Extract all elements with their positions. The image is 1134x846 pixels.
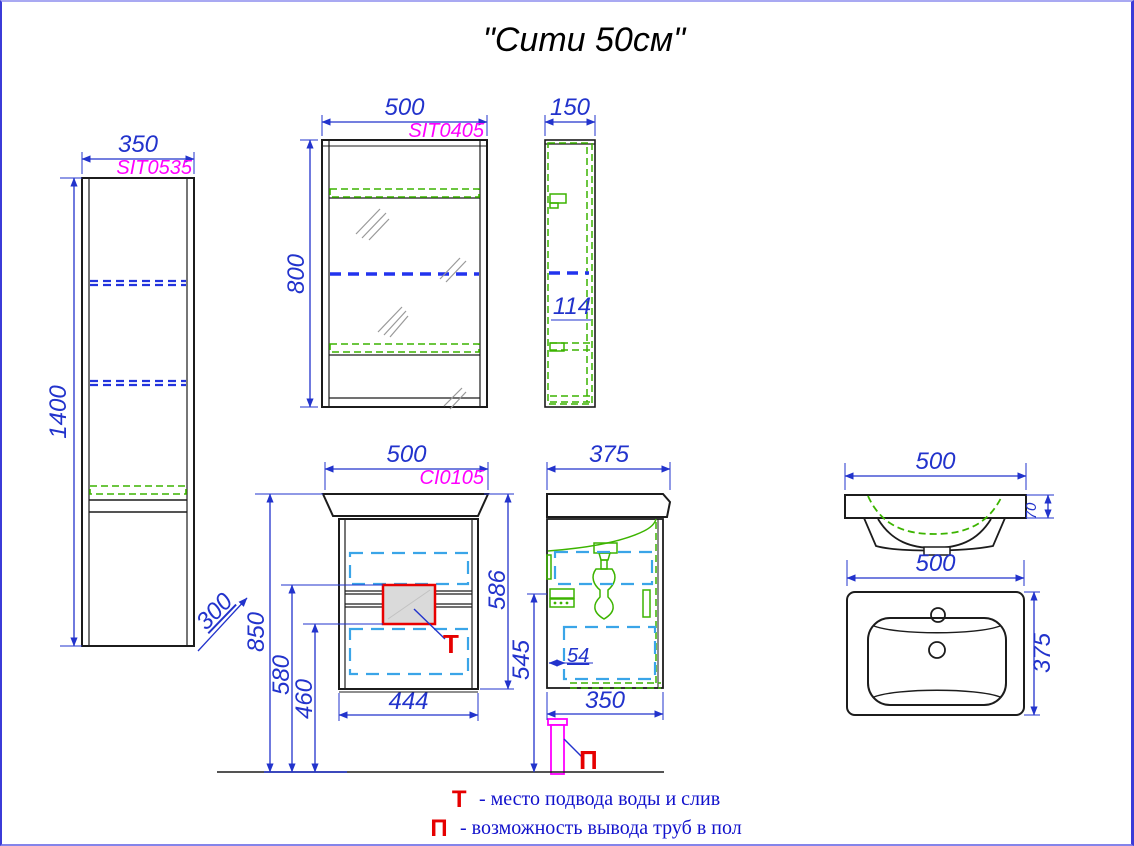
legend-item-water: Т - место подвода воды и слив [286, 785, 886, 814]
faucet-hole-icon [931, 608, 945, 622]
dim-mirror-depth: 150 [545, 96, 595, 120]
dim-vanity-depth: 375 [547, 443, 671, 467]
mirror-hatch-marks [356, 209, 466, 409]
legend-text-pipe: - возможность вывода труб в пол [460, 817, 742, 839]
legend-item-pipe: П - возможность вывода труб в пол [286, 814, 886, 843]
drawing-sheet: "Сити 50см" 350 SIT0535 1400 300 500 SIT… [0, 0, 1134, 846]
vanity-side-drawing [547, 494, 670, 774]
sink-top-view-drawing [847, 592, 1024, 715]
dim-vanity-supply-bottom: 460 [293, 659, 317, 739]
dim-vanity-mount-height: 850 [245, 587, 269, 677]
dim-vanity-drain-height: 545 [510, 615, 534, 705]
tall-cabinet-front-drawing [82, 178, 194, 646]
dim-vanity-drain-offset: 54 [567, 646, 597, 666]
sink-front-drawing [845, 495, 1026, 555]
dim-vanity-width: 500 [325, 443, 488, 467]
dim-sink-width: 500 [845, 450, 1026, 474]
dim-sink-top-depth: 375 [1031, 608, 1055, 698]
code-vanity: CI0105 [333, 468, 484, 488]
dim-tall-cabinet-width: 350 [82, 133, 194, 157]
drain-hole-icon [929, 642, 945, 658]
dim-vanity-inner-width: 444 [339, 690, 478, 714]
dim-mirror-width: 500 [322, 96, 487, 120]
mirror-cabinet-front-drawing [322, 140, 487, 409]
drawing-canvas [2, 2, 1134, 846]
dim-sink-top-width: 500 [847, 552, 1024, 576]
page-title: "Сити 50см" [369, 20, 799, 60]
floor-pipe-icon [548, 719, 567, 774]
legend-symbol-pipe: П [430, 815, 447, 842]
basin-underside-curve [548, 519, 656, 551]
vanity-front-drawing [323, 494, 488, 692]
mirror-cabinet-side-drawing [545, 140, 595, 407]
dim-vanity-height: 586 [486, 550, 510, 630]
code-tall-cabinet: SIT0535 [92, 158, 192, 178]
floor-pipe-marker: П [579, 747, 598, 773]
dim-sink-rim-height: 70 [1024, 491, 1048, 531]
dim-tall-cabinet-height: 1400 [47, 372, 71, 452]
legend-text-water: - место подвода воды и слив [479, 788, 720, 810]
dim-vanity-body-depth: 350 [547, 689, 663, 713]
water-supply-zone [383, 585, 445, 639]
dim-mirror-height: 800 [285, 234, 309, 314]
siphon-trap-icon [593, 543, 617, 619]
dim-mirror-shelf-gap: 114 [551, 295, 593, 319]
legend-symbol-water: Т [452, 786, 467, 813]
code-mirror-cabinet: SIT0405 [333, 121, 484, 141]
legend: Т - место подвода воды и слив П - возмож… [286, 785, 886, 843]
water-supply-marker: Т [443, 631, 459, 657]
